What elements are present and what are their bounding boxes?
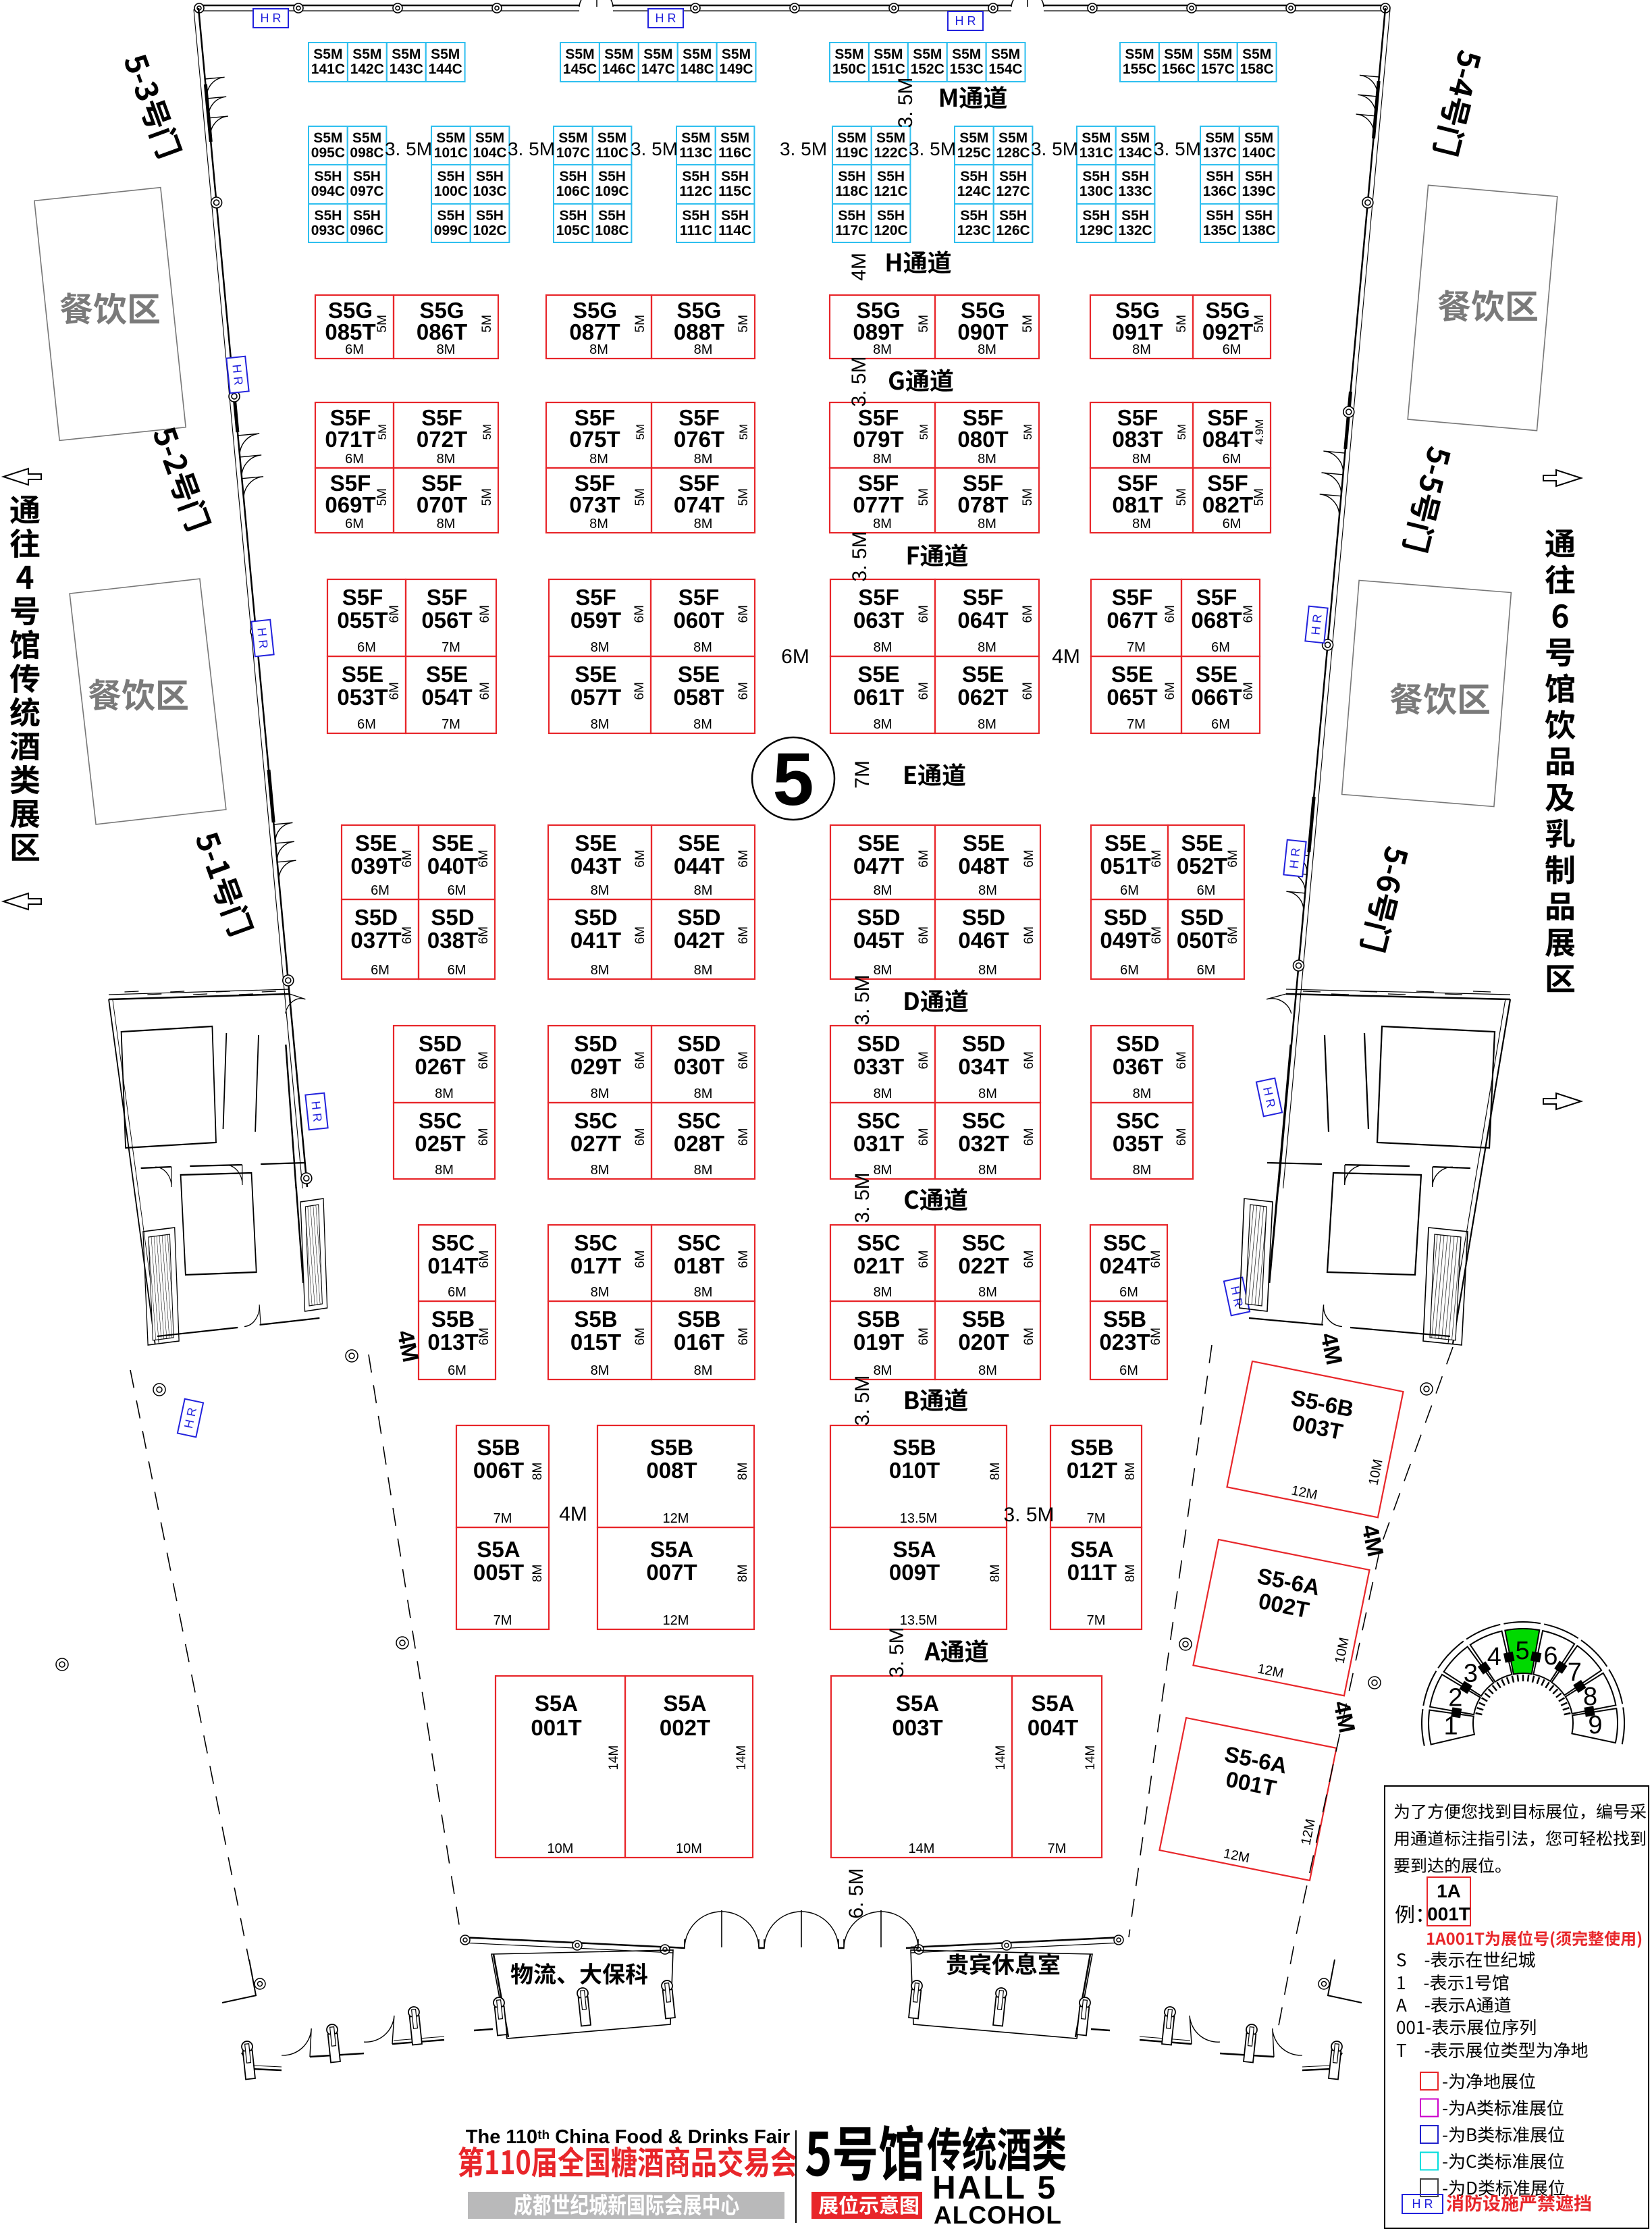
svg-text:039T: 039T xyxy=(350,853,401,878)
svg-text:3. 5M: 3. 5M xyxy=(631,138,678,159)
svg-text:6M: 6M xyxy=(478,682,492,700)
svg-text:5M: 5M xyxy=(376,424,389,440)
svg-text:14M: 14M xyxy=(1084,1745,1098,1770)
svg-text:111C: 111C xyxy=(680,223,712,238)
svg-text:8M: 8M xyxy=(589,517,608,531)
svg-text:4M: 4M xyxy=(1052,646,1080,668)
svg-text:S5D: S5D xyxy=(1116,1031,1159,1056)
svg-text:104C: 104C xyxy=(473,145,506,161)
svg-text:063T: 063T xyxy=(853,608,904,633)
svg-text:H R: H R xyxy=(656,11,676,25)
svg-text:8M: 8M xyxy=(591,1285,610,1300)
svg-text:6M: 6M xyxy=(1022,1128,1036,1146)
svg-text:6M: 6M xyxy=(737,849,751,867)
svg-text:073T: 073T xyxy=(569,492,620,517)
svg-text:6M: 6M xyxy=(633,682,647,700)
svg-text:6M: 6M xyxy=(633,1251,647,1268)
svg-text:015T: 015T xyxy=(570,1330,621,1355)
svg-text:032T: 032T xyxy=(958,1131,1009,1156)
svg-text:013T: 013T xyxy=(427,1330,478,1355)
svg-text:1A: 1A xyxy=(1437,1881,1461,1901)
svg-text:3. 5M: 3. 5M xyxy=(1154,138,1201,159)
svg-text:S5E: S5E xyxy=(678,831,720,856)
svg-text:065T: 065T xyxy=(1107,685,1157,710)
svg-text:6M: 6M xyxy=(633,1128,647,1146)
svg-text:6M: 6M xyxy=(448,963,467,978)
svg-text:H R: H R xyxy=(1287,847,1302,870)
svg-text:055T: 055T xyxy=(337,608,388,633)
svg-text:7M: 7M xyxy=(1127,717,1146,732)
svg-text:S5C: S5C xyxy=(857,1230,900,1255)
svg-text:6M: 6M xyxy=(1120,963,1139,978)
svg-text:079T: 079T xyxy=(853,427,903,452)
svg-text:S5B: S5B xyxy=(650,1435,693,1460)
svg-text:070T: 070T xyxy=(417,492,467,517)
svg-text:3. 5M: 3. 5M xyxy=(851,974,874,1025)
svg-text:S5E: S5E xyxy=(1196,662,1237,687)
svg-text:7M: 7M xyxy=(1048,1841,1067,1856)
svg-text:S5H: S5H xyxy=(353,208,381,224)
svg-text:6M: 6M xyxy=(737,1328,751,1345)
svg-text:056T: 056T xyxy=(421,608,472,633)
svg-text:8M: 8M xyxy=(694,1163,713,1178)
svg-text:116C: 116C xyxy=(718,145,751,161)
svg-text:8M: 8M xyxy=(978,883,997,898)
svg-text:137C: 137C xyxy=(1203,145,1237,161)
svg-text:6M: 6M xyxy=(477,1128,491,1146)
svg-text:8M: 8M xyxy=(988,1463,1003,1480)
svg-text:S5M: S5M xyxy=(597,130,627,146)
svg-text:130C: 130C xyxy=(1080,184,1113,199)
svg-text:S5C: S5C xyxy=(677,1108,720,1133)
svg-text:127C: 127C xyxy=(996,184,1030,199)
svg-text:072T: 072T xyxy=(417,427,467,452)
svg-text:8M: 8M xyxy=(978,1086,997,1101)
svg-text:156C: 156C xyxy=(1162,61,1196,77)
svg-text:142C: 142C xyxy=(350,61,384,77)
svg-text:S5M: S5M xyxy=(436,130,465,146)
svg-text:5M: 5M xyxy=(737,424,750,440)
svg-text:S5M: S5M xyxy=(558,130,587,146)
svg-text:S5E: S5E xyxy=(678,662,720,687)
svg-text:076T: 076T xyxy=(674,427,724,452)
svg-text:8M: 8M xyxy=(874,1086,892,1101)
svg-text:S5E: S5E xyxy=(426,662,468,687)
svg-text:6M: 6M xyxy=(633,605,647,623)
svg-text:S5B: S5B xyxy=(677,1307,720,1332)
svg-text:S5B: S5B xyxy=(857,1307,900,1332)
svg-text:135C: 135C xyxy=(1203,223,1237,238)
svg-text:5M: 5M xyxy=(1021,315,1035,332)
svg-text:S5E: S5E xyxy=(1111,662,1153,687)
svg-text:S5M: S5M xyxy=(874,47,903,62)
svg-text:6M: 6M xyxy=(1022,1328,1036,1345)
svg-text:S5H: S5H xyxy=(999,169,1027,184)
svg-text:12M: 12M xyxy=(663,1613,689,1628)
svg-text:067T: 067T xyxy=(1107,608,1157,633)
svg-text:044T: 044T xyxy=(674,853,724,878)
svg-text:5M: 5M xyxy=(634,424,647,440)
svg-text:13.5M: 13.5M xyxy=(900,1613,938,1628)
svg-text:6M: 6M xyxy=(371,963,390,978)
svg-text:004T: 004T xyxy=(1028,1715,1078,1740)
svg-text:151C: 151C xyxy=(872,61,905,77)
svg-text:8M: 8M xyxy=(435,1086,454,1101)
svg-text:133C: 133C xyxy=(1118,184,1152,199)
svg-text:14M: 14M xyxy=(735,1745,749,1770)
svg-text:153C: 153C xyxy=(950,61,984,77)
svg-text:S5C: S5C xyxy=(1116,1108,1159,1133)
svg-text:5M: 5M xyxy=(480,488,494,506)
svg-text:S5F: S5F xyxy=(678,585,720,610)
svg-text:144C: 144C xyxy=(429,61,462,77)
svg-text:6M: 6M xyxy=(1149,1251,1163,1268)
svg-text:8M: 8M xyxy=(1132,342,1151,357)
svg-text:7M: 7M xyxy=(442,717,460,732)
svg-text:S5M: S5M xyxy=(991,47,1020,62)
svg-text:6M: 6M xyxy=(917,605,931,623)
svg-text:S5H: S5H xyxy=(559,208,587,224)
svg-text:S5M: S5M xyxy=(431,47,460,62)
svg-text:8M: 8M xyxy=(874,1163,892,1178)
svg-text:8M: 8M xyxy=(589,452,608,467)
svg-text:5M: 5M xyxy=(633,315,647,332)
svg-text:8M: 8M xyxy=(694,1086,713,1101)
svg-text:6M: 6M xyxy=(1223,517,1242,531)
svg-text:S5M: S5M xyxy=(1205,130,1234,146)
svg-text:S5F: S5F xyxy=(342,585,383,610)
svg-text:093C: 093C xyxy=(311,223,345,238)
svg-text:S5B: S5B xyxy=(1070,1435,1113,1460)
svg-text:5M: 5M xyxy=(633,488,647,506)
svg-text:S5M: S5M xyxy=(683,47,712,62)
svg-text:066T: 066T xyxy=(1191,685,1242,710)
svg-text:6M: 6M xyxy=(1175,1051,1189,1069)
svg-text:S5M: S5M xyxy=(352,47,381,62)
svg-text:139C: 139C xyxy=(1242,184,1275,199)
svg-text:087T: 087T xyxy=(569,319,620,344)
svg-text:8M: 8M xyxy=(1123,1463,1138,1480)
svg-text:14M: 14M xyxy=(607,1745,621,1770)
svg-text:3. 5M: 3. 5M xyxy=(385,138,432,159)
svg-text:S5A: S5A xyxy=(650,1537,693,1562)
svg-text:S5H: S5H xyxy=(960,208,988,224)
svg-text:8M: 8M xyxy=(694,1285,713,1300)
svg-text:S5M: S5M xyxy=(313,47,342,62)
svg-text:S5M: S5M xyxy=(834,47,863,62)
svg-text:140C: 140C xyxy=(1242,145,1275,161)
svg-text:S5H: S5H xyxy=(476,208,504,224)
svg-text:022T: 022T xyxy=(958,1253,1009,1278)
svg-text:8: 8 xyxy=(1583,1683,1597,1711)
svg-text:158C: 158C xyxy=(1240,61,1274,77)
svg-text:7M: 7M xyxy=(1087,1613,1106,1628)
svg-text:6M: 6M xyxy=(388,682,402,700)
svg-text:8M: 8M xyxy=(531,1565,545,1582)
svg-text:S5M: S5M xyxy=(876,130,905,146)
svg-text:S5M: S5M xyxy=(475,130,504,146)
svg-text:8M: 8M xyxy=(693,717,712,732)
svg-text:The 110th China Food & Drinks: The 110th China Food & Drinks Fair xyxy=(466,2126,790,2148)
svg-text:3. 5M: 3. 5M xyxy=(895,77,917,128)
svg-text:S5M: S5M xyxy=(1203,47,1232,62)
svg-text:6M: 6M xyxy=(917,849,931,867)
svg-text:034T: 034T xyxy=(958,1054,1009,1079)
svg-text:5M: 5M xyxy=(481,424,494,440)
svg-text:8M: 8M xyxy=(694,1363,713,1378)
svg-text:8M: 8M xyxy=(978,342,996,357)
svg-text:S5M: S5M xyxy=(913,47,942,62)
svg-text:6M: 6M xyxy=(1211,717,1230,732)
svg-text:023T: 023T xyxy=(1099,1330,1150,1355)
svg-text:8M: 8M xyxy=(874,883,892,898)
svg-text:113C: 113C xyxy=(679,145,712,161)
svg-text:3. 5M: 3. 5M xyxy=(780,138,827,159)
svg-text:085T: 085T xyxy=(325,319,375,344)
svg-text:014T: 014T xyxy=(427,1253,478,1278)
svg-text:S5F: S5F xyxy=(427,585,468,610)
svg-text:042T: 042T xyxy=(674,928,724,953)
svg-text:6M: 6M xyxy=(1022,849,1036,867)
svg-text:046T: 046T xyxy=(958,928,1009,953)
svg-text:8M: 8M xyxy=(694,883,713,898)
svg-text:S5H: S5H xyxy=(1245,169,1273,184)
svg-text:S5M: S5M xyxy=(604,47,633,62)
svg-text:061T: 061T xyxy=(853,685,904,710)
svg-text:007T: 007T xyxy=(646,1560,697,1585)
svg-text:001T: 001T xyxy=(1427,1903,1470,1924)
svg-text:H R: H R xyxy=(309,1101,324,1123)
svg-text:S5D: S5D xyxy=(677,1031,720,1056)
svg-text:118C: 118C xyxy=(835,184,868,199)
svg-text:074T: 074T xyxy=(674,492,724,517)
svg-text:5M: 5M xyxy=(375,488,390,506)
svg-text:8M: 8M xyxy=(1123,1565,1138,1582)
svg-text:S5F: S5F xyxy=(1196,585,1237,610)
svg-text:101C: 101C xyxy=(434,145,468,161)
svg-text:115C: 115C xyxy=(718,184,751,199)
svg-text:8M: 8M xyxy=(736,1565,750,1582)
svg-text:045T: 045T xyxy=(853,928,904,953)
svg-text:S5M: S5M xyxy=(952,47,981,62)
svg-text:S5D: S5D xyxy=(574,905,617,930)
svg-text:002T: 002T xyxy=(660,1715,710,1740)
svg-text:091T: 091T xyxy=(1112,319,1163,344)
svg-text:S5E: S5E xyxy=(431,831,473,856)
svg-text:S5H: S5H xyxy=(999,208,1027,224)
svg-text:8M: 8M xyxy=(978,1363,997,1378)
svg-text:8M: 8M xyxy=(874,717,892,732)
svg-text:S5H: S5H xyxy=(960,169,988,184)
svg-text:S5B: S5B xyxy=(962,1307,1005,1332)
svg-text:6M: 6M xyxy=(917,1251,931,1268)
svg-text:6M: 6M xyxy=(478,605,492,623)
svg-text:8M: 8M xyxy=(694,963,713,978)
svg-text:7: 7 xyxy=(1568,1658,1582,1687)
svg-text:6M: 6M xyxy=(633,926,647,944)
svg-text:S5E: S5E xyxy=(963,831,1005,856)
svg-text:112C: 112C xyxy=(679,184,712,199)
svg-text:S5C: S5C xyxy=(574,1108,617,1133)
svg-text:H R: H R xyxy=(255,627,270,650)
svg-text:009T: 009T xyxy=(889,1560,940,1585)
svg-text:092T: 092T xyxy=(1202,319,1253,344)
svg-text:S5D: S5D xyxy=(677,905,720,930)
svg-text:8M: 8M xyxy=(591,717,610,732)
svg-text:024T: 024T xyxy=(1099,1253,1150,1278)
svg-text:S5B: S5B xyxy=(431,1307,475,1332)
svg-text:5M: 5M xyxy=(917,488,931,506)
svg-text:4.9M: 4.9M xyxy=(1253,419,1266,445)
svg-text:035T: 035T xyxy=(1113,1131,1163,1156)
svg-text:099C: 099C xyxy=(434,223,468,238)
svg-text:8M: 8M xyxy=(874,963,892,978)
svg-text:3. 5M: 3. 5M xyxy=(1003,1504,1054,1526)
svg-text:6M: 6M xyxy=(1211,640,1230,655)
svg-text:4M: 4M xyxy=(848,253,870,281)
svg-text:S5M: S5M xyxy=(722,47,751,62)
svg-text:S5M: S5M xyxy=(720,130,749,146)
svg-text:150C: 150C xyxy=(832,61,866,77)
svg-text:8M: 8M xyxy=(694,517,713,531)
svg-text:S5F: S5F xyxy=(858,585,899,610)
svg-text:083T: 083T xyxy=(1112,427,1163,452)
svg-text:8M: 8M xyxy=(1133,1163,1152,1178)
svg-text:S5M: S5M xyxy=(1082,130,1111,146)
svg-text:S5E: S5E xyxy=(1181,831,1223,856)
svg-text:S5H: S5H xyxy=(559,169,587,184)
svg-text:S5M: S5M xyxy=(643,47,672,62)
svg-text:5M: 5M xyxy=(1252,488,1267,506)
svg-text:6M: 6M xyxy=(737,1051,751,1069)
svg-text:S5E: S5E xyxy=(857,662,899,687)
svg-text:8M: 8M xyxy=(591,1363,610,1378)
svg-text:128C: 128C xyxy=(996,145,1030,161)
svg-text:012T: 012T xyxy=(1067,1458,1117,1483)
svg-text:145C: 145C xyxy=(563,61,597,77)
svg-text:5M: 5M xyxy=(375,315,390,332)
svg-text:027T: 027T xyxy=(570,1131,621,1156)
svg-text:6M: 6M xyxy=(1022,926,1036,944)
svg-text:6M: 6M xyxy=(477,1251,491,1268)
svg-text:S5C: S5C xyxy=(574,1230,617,1255)
svg-text:8M: 8M xyxy=(694,342,713,357)
svg-text:S5E: S5E xyxy=(857,831,899,856)
svg-text:S5B: S5B xyxy=(477,1435,520,1460)
svg-text:048T: 048T xyxy=(958,853,1009,878)
svg-text:6M: 6M xyxy=(1242,682,1256,700)
svg-text:132C: 132C xyxy=(1118,223,1152,238)
svg-text:8M: 8M xyxy=(437,517,456,531)
svg-text:086T: 086T xyxy=(417,319,467,344)
svg-text:S5H: S5H xyxy=(877,169,905,184)
svg-text:129C: 129C xyxy=(1080,223,1113,238)
svg-text:054T: 054T xyxy=(421,685,472,710)
svg-text:149C: 149C xyxy=(719,61,753,77)
svg-text:096C: 096C xyxy=(350,223,383,238)
svg-text:6M: 6M xyxy=(1223,342,1242,357)
svg-text:S5A: S5A xyxy=(477,1537,520,1562)
svg-text:040T: 040T xyxy=(427,853,478,878)
svg-text:14M: 14M xyxy=(909,1841,935,1856)
svg-text:S5C: S5C xyxy=(419,1108,462,1133)
svg-text:7M: 7M xyxy=(442,640,460,655)
svg-text:8M: 8M xyxy=(873,342,892,357)
svg-text:S5E: S5E xyxy=(575,662,616,687)
svg-text:052T: 052T xyxy=(1177,853,1227,878)
svg-text:8M: 8M xyxy=(978,640,996,655)
svg-text:S5H: S5H xyxy=(1206,208,1233,224)
svg-text:102C: 102C xyxy=(473,223,506,238)
svg-text:5M: 5M xyxy=(1175,315,1189,332)
svg-text:S5D: S5D xyxy=(857,1031,900,1056)
svg-text:S5M: S5M xyxy=(1121,130,1150,146)
svg-text:5M: 5M xyxy=(1021,424,1034,440)
svg-text:6M: 6M xyxy=(1149,1328,1163,1345)
svg-text:5M: 5M xyxy=(480,315,494,332)
svg-text:8M: 8M xyxy=(694,452,713,467)
svg-text:6M: 6M xyxy=(477,1328,491,1345)
svg-text:155C: 155C xyxy=(1123,61,1156,77)
svg-text:S5H: S5H xyxy=(598,208,626,224)
svg-text:5M: 5M xyxy=(737,315,751,332)
svg-text:S5H: S5H xyxy=(838,169,865,184)
svg-text:3. 5M: 3. 5M xyxy=(849,531,871,581)
svg-text:H R: H R xyxy=(230,364,245,386)
svg-text:6M: 6M xyxy=(1150,926,1164,944)
svg-text:6M: 6M xyxy=(448,1285,467,1300)
svg-text:S5D: S5D xyxy=(354,905,398,930)
svg-text:6M: 6M xyxy=(345,517,364,531)
svg-text:S5D: S5D xyxy=(962,1031,1005,1056)
svg-text:8M: 8M xyxy=(591,883,610,898)
svg-text:6M: 6M xyxy=(345,342,364,357)
svg-text:8M: 8M xyxy=(874,1363,892,1378)
svg-text:031T: 031T xyxy=(853,1131,904,1156)
svg-text:8M: 8M xyxy=(435,1163,454,1178)
svg-text:6M: 6M xyxy=(448,1363,467,1378)
svg-text:050T: 050T xyxy=(1177,928,1227,953)
svg-text:6M: 6M xyxy=(1119,1363,1138,1378)
svg-text:018T: 018T xyxy=(674,1253,724,1278)
svg-text:6M: 6M xyxy=(357,717,376,732)
svg-text:S5A: S5A xyxy=(663,1691,706,1716)
svg-text:157C: 157C xyxy=(1201,61,1235,77)
svg-text:5: 5 xyxy=(772,738,814,821)
svg-text:090T: 090T xyxy=(957,319,1008,344)
svg-text:4: 4 xyxy=(1487,1643,1501,1671)
svg-text:6M: 6M xyxy=(781,646,809,668)
svg-text:S5M: S5M xyxy=(392,47,421,62)
svg-text:10M: 10M xyxy=(676,1841,702,1856)
svg-text:124C: 124C xyxy=(957,184,991,199)
svg-text:6M: 6M xyxy=(1022,1051,1036,1069)
svg-text:3. 5M: 3. 5M xyxy=(886,1627,908,1677)
svg-text:026T: 026T xyxy=(415,1054,465,1079)
svg-text:131C: 131C xyxy=(1080,145,1113,161)
svg-text:S5H: S5H xyxy=(598,169,626,184)
svg-text:6M: 6M xyxy=(1175,1128,1189,1146)
svg-text:S5A: S5A xyxy=(896,1691,939,1716)
svg-text:075T: 075T xyxy=(569,427,620,452)
svg-text:123C: 123C xyxy=(957,223,991,238)
svg-text:8M: 8M xyxy=(978,452,996,467)
svg-text:7M: 7M xyxy=(494,1613,512,1628)
svg-text:S5E: S5E xyxy=(342,662,383,687)
svg-text:6M: 6M xyxy=(737,926,751,944)
svg-text:038T: 038T xyxy=(427,928,478,953)
svg-text:4M: 4M xyxy=(559,1503,587,1525)
